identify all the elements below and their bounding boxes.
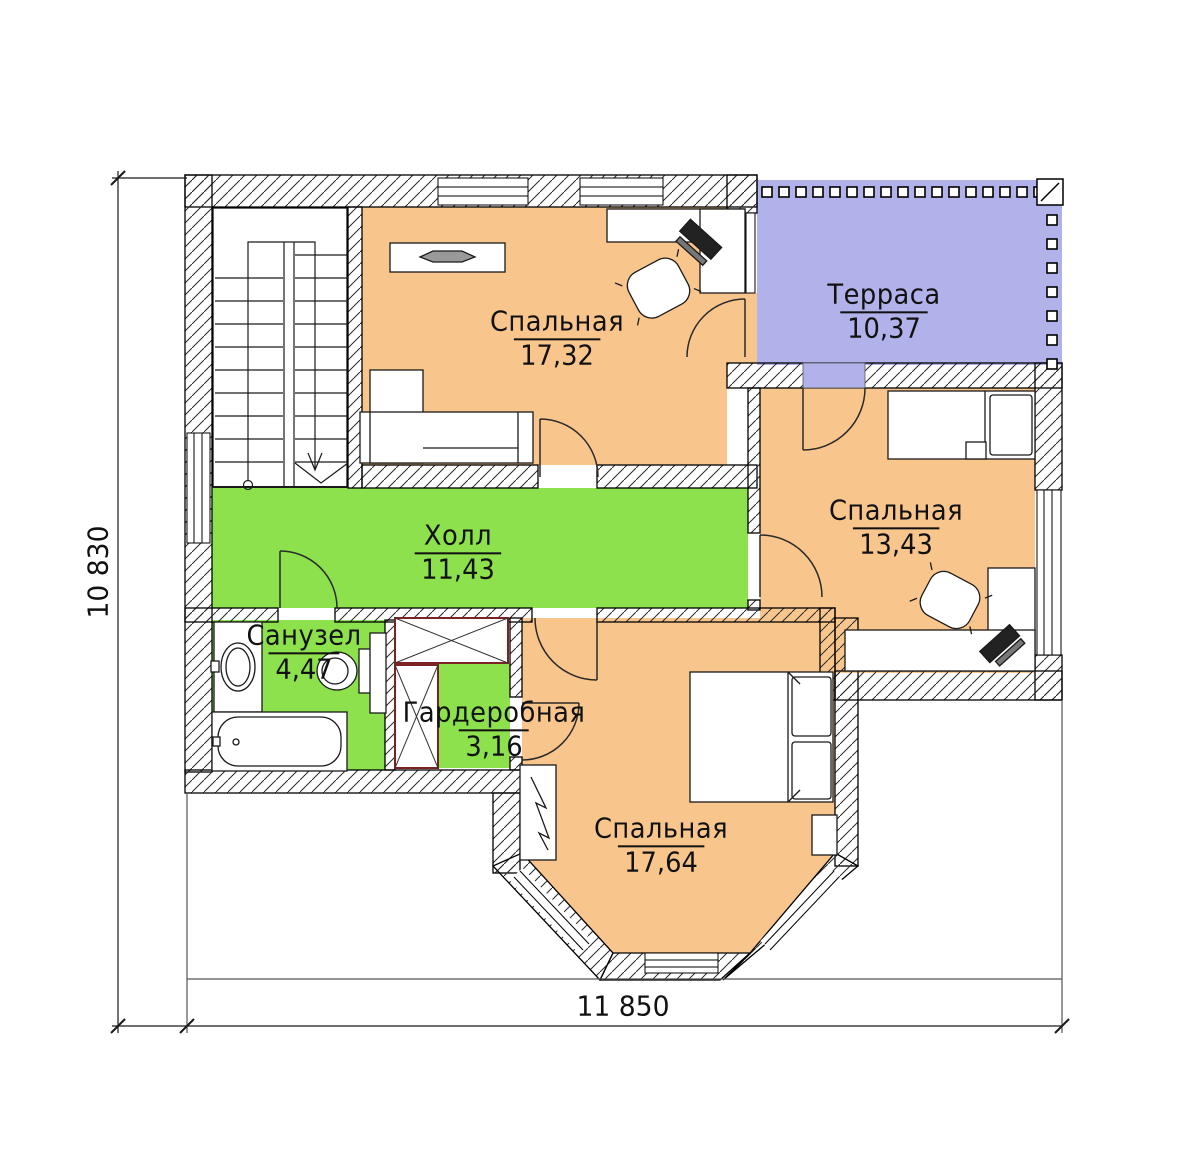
label-terrace: Терраса 10,37 [827,279,940,342]
room-area: 4,47 [269,652,339,684]
dresser-handle [420,251,475,262]
railing-post [1017,187,1027,197]
wall-hall-right-upper [748,388,760,533]
room-area: 10,37 [841,311,928,343]
railing-post [898,187,908,197]
label-bedroom-2: Спальная 13,43 [829,495,963,558]
railing-post [983,187,993,197]
wall-hall-top-west [362,465,538,488]
railing-post [779,187,789,197]
dimension-height: 10 830 [82,525,115,618]
wall-bedroom3-top [597,608,835,622]
railing-post [881,187,891,197]
window-top-1 [438,178,528,205]
room-name: Терраса [827,279,940,309]
room-name: Спальная [829,495,963,525]
label-bedroom-1: Спальная 17,32 [490,306,624,369]
window-left [187,433,210,543]
railing-post [1000,187,1010,197]
railing-post [966,187,976,197]
floor-plan: Спальная 17,32 Терраса 10,37 Спальная 13… [0,0,1182,1173]
label-wardrobe: Гардеробная 3,16 [403,697,586,760]
nightstand [812,815,837,855]
railing-post [1047,263,1057,273]
window-bay-bottom [645,953,718,973]
window-bedroom2-right [1037,490,1061,655]
room-name: Холл [415,520,502,550]
label-bedroom-3: Спальная 17,64 [594,813,728,876]
wall-bedroom1-terrace-upper [727,175,757,213]
wall-bedroom2-right-upper [1035,363,1062,490]
dimension-width: 11 850 [576,990,669,1023]
room-area: 17,32 [514,338,601,370]
label-bathroom: Санузел 4,47 [246,620,361,683]
room-name: Спальная [594,813,728,843]
railing-post [847,187,857,197]
staircase [213,208,348,490]
label-hall: Холл 11,43 [415,520,502,583]
railing-post [830,187,840,197]
wall-terrace-bottom [727,363,1062,388]
wall-hall-top-east [597,465,757,488]
room-name: Спальная [490,306,624,336]
wall-bedroom2-bottom [835,671,1062,700]
railing-post [762,187,772,197]
railing-post [1047,335,1057,345]
room-area: 3,16 [459,729,529,761]
bathtub [212,712,347,771]
room-area: 17,64 [618,845,705,877]
room-name: Санузел [246,620,361,650]
railing-post [1047,287,1057,297]
railing-post [1047,311,1057,321]
window-top-2 [580,178,663,205]
room-area: 11,43 [415,552,502,584]
railing-post [864,187,874,197]
railing-post [915,187,925,197]
room-bedroom-1-door-nook [727,293,757,363]
room-area: 13,43 [853,527,940,559]
railing-post [813,187,823,197]
wall-wardrobe-right-upper [510,618,522,697]
railing-post [1047,239,1057,249]
railing-post [1047,359,1057,369]
radiator [520,765,556,860]
room-name: Гардеробная [403,697,586,727]
railing-post [1047,215,1057,225]
bed-double [690,672,833,802]
bed-single [888,391,1035,459]
terrace-door-opening [803,363,865,388]
terrace-corner-post [1037,179,1063,205]
railing-post [796,187,806,197]
railing-post [949,187,959,197]
railing-post [932,187,942,197]
wall-bathroom-bottom [185,770,530,793]
